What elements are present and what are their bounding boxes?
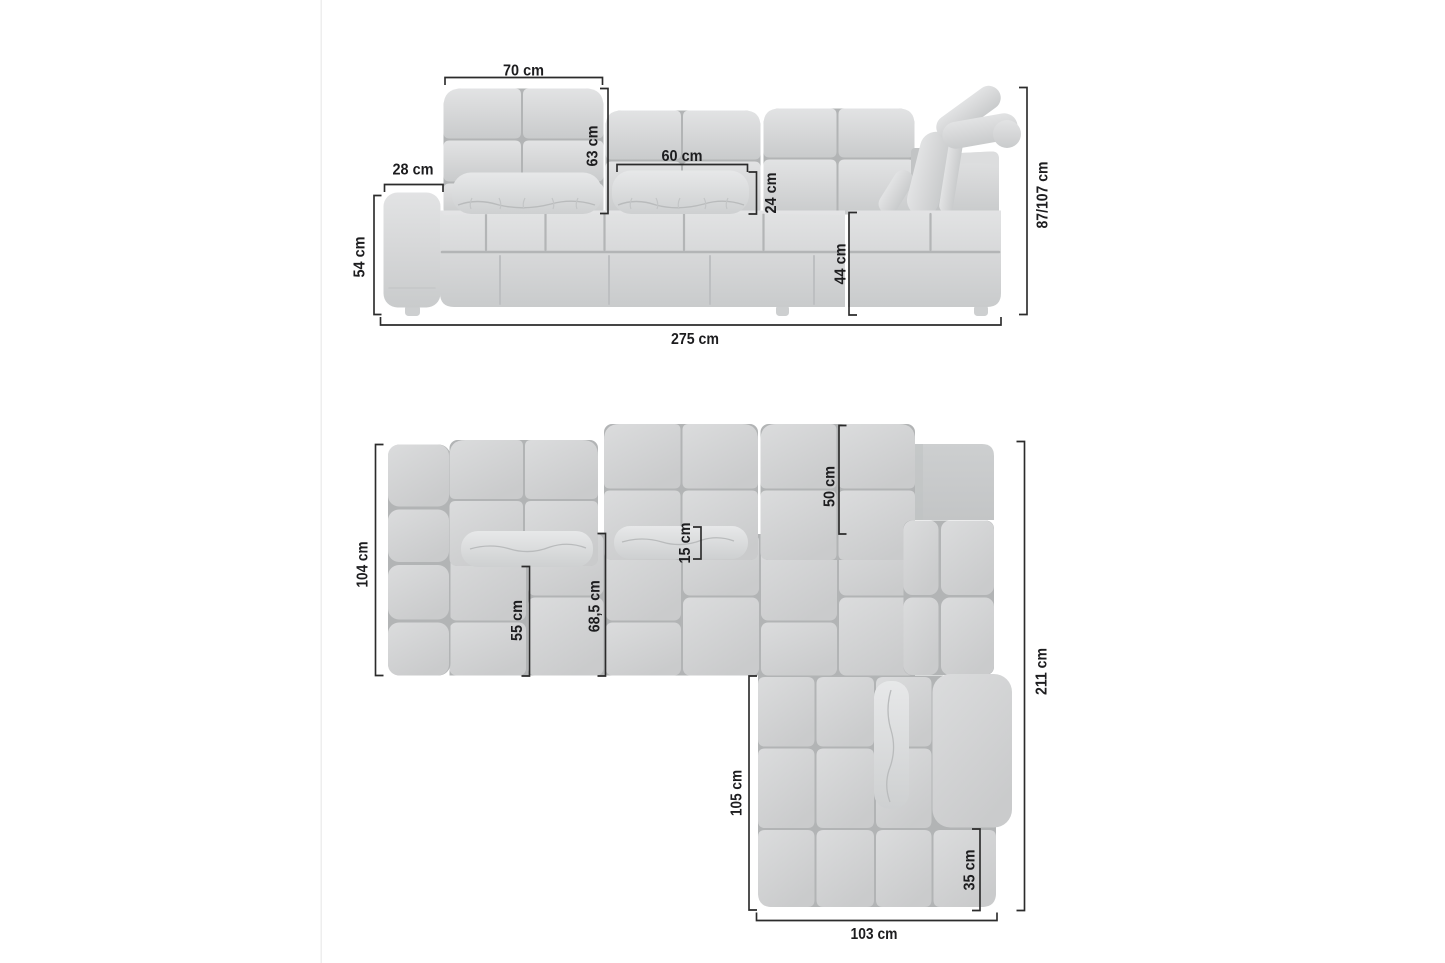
svg-text:44 cm: 44 cm bbox=[832, 244, 849, 285]
svg-text:87/107 cm: 87/107 cm bbox=[1035, 162, 1052, 229]
svg-text:70 cm: 70 cm bbox=[503, 62, 544, 79]
svg-text:63 cm: 63 cm bbox=[584, 126, 601, 167]
svg-text:105 cm: 105 cm bbox=[728, 770, 745, 816]
svg-text:60 cm: 60 cm bbox=[662, 148, 703, 165]
svg-text:103 cm: 103 cm bbox=[851, 926, 898, 943]
svg-text:24 cm: 24 cm bbox=[763, 173, 780, 214]
svg-text:104 cm: 104 cm bbox=[355, 542, 372, 588]
svg-text:54 cm: 54 cm bbox=[351, 237, 368, 278]
svg-text:28 cm: 28 cm bbox=[393, 161, 434, 178]
svg-text:68,5 cm: 68,5 cm bbox=[586, 580, 603, 632]
svg-text:15 cm: 15 cm bbox=[677, 523, 694, 564]
svg-text:275 cm: 275 cm bbox=[671, 331, 719, 348]
svg-text:50 cm: 50 cm bbox=[821, 466, 838, 507]
svg-text:211 cm: 211 cm bbox=[1033, 648, 1050, 695]
svg-text:35 cm: 35 cm bbox=[961, 850, 978, 891]
svg-text:55 cm: 55 cm bbox=[509, 600, 526, 641]
